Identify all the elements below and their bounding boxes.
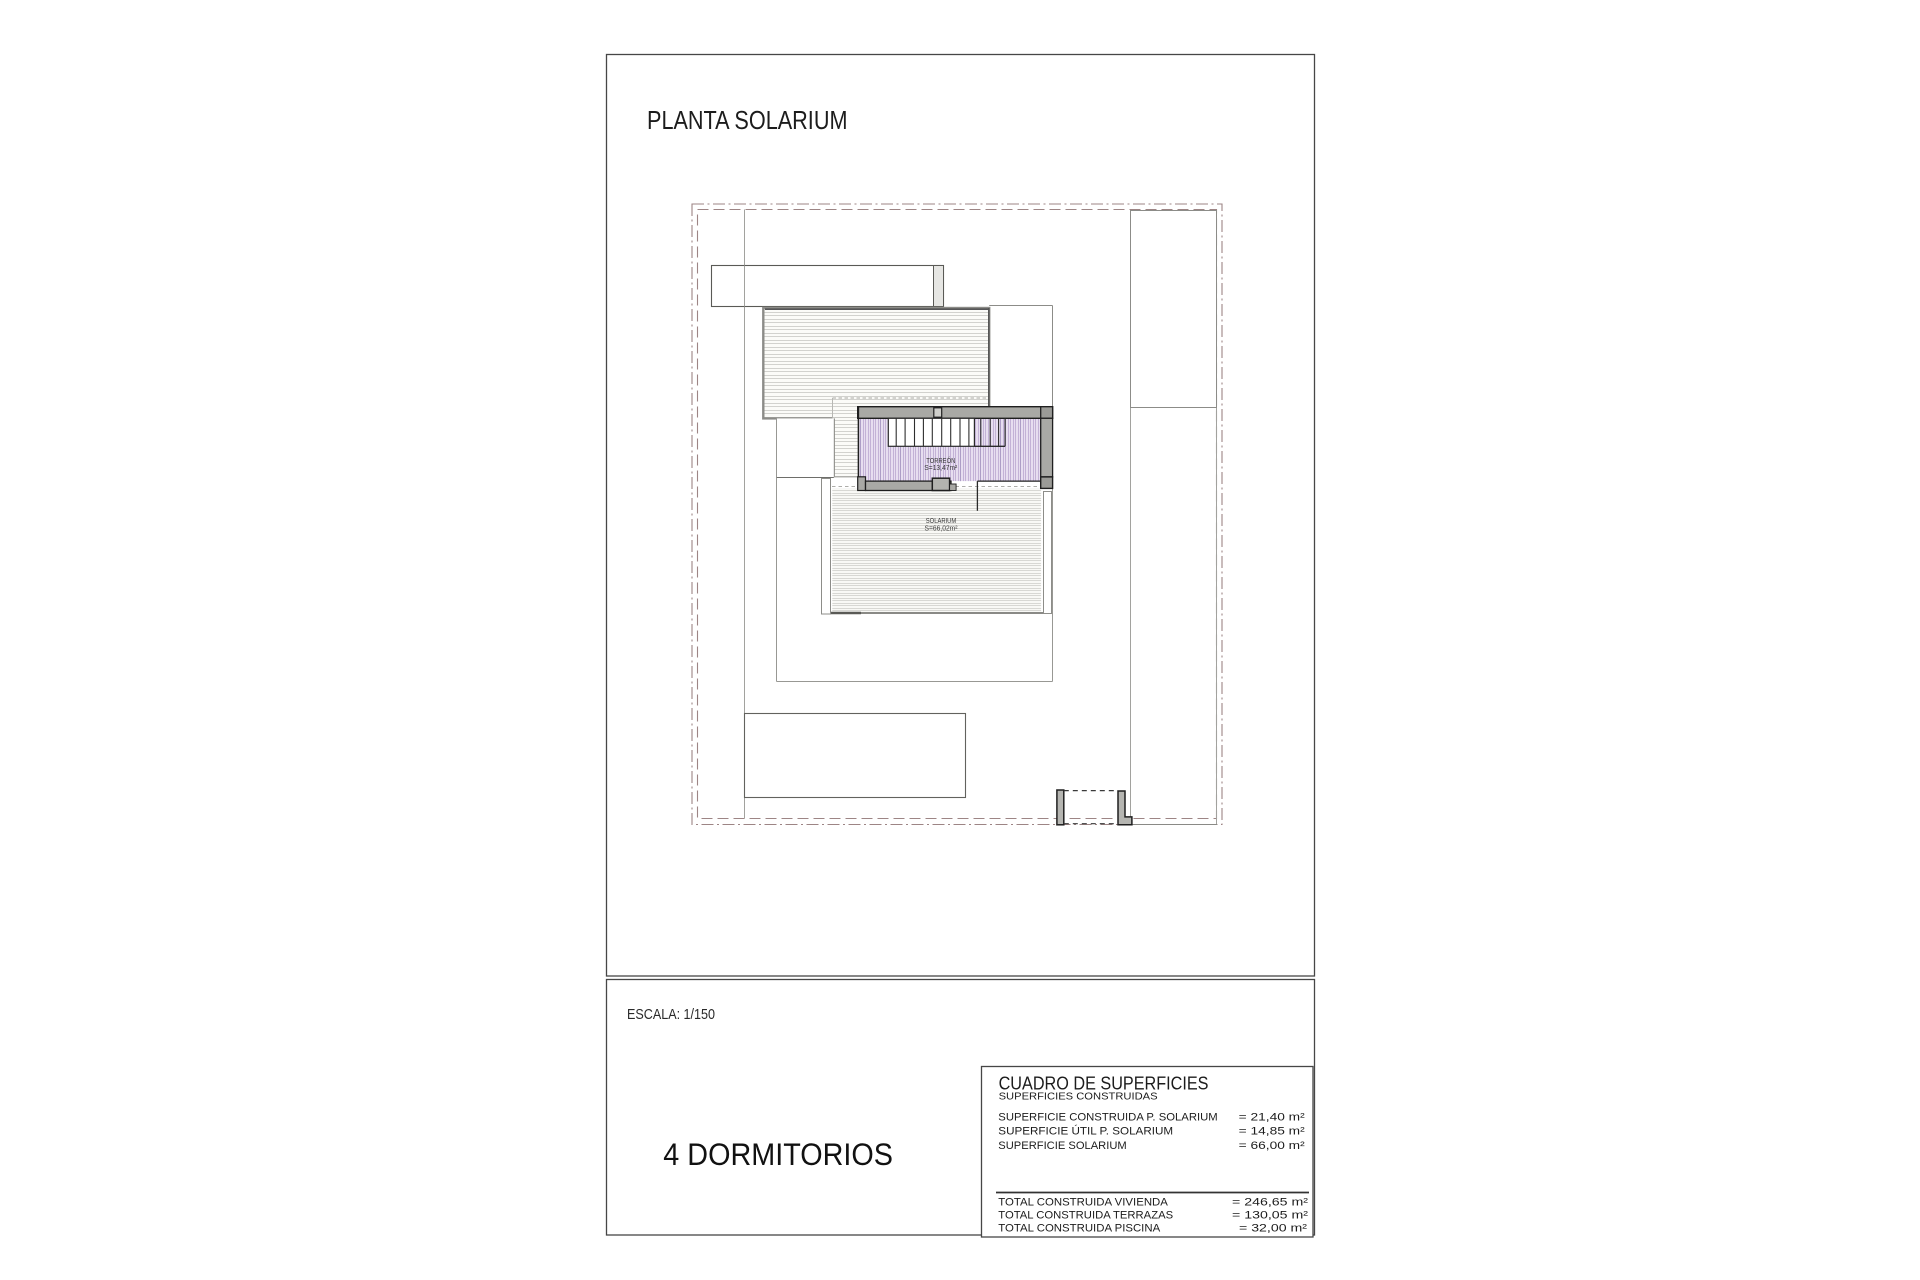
svg-text:SUPERFICIE ÚTIL P. SOLARIUM: SUPERFICIE ÚTIL P. SOLARIUM [998, 1124, 1173, 1137]
svg-text:SUPERFICIE SOLARIUM: SUPERFICIE SOLARIUM [998, 1140, 1126, 1152]
svg-text:PLANTA SOLARIUM: PLANTA SOLARIUM [647, 107, 848, 135]
svg-text:= 21,40 m²: = 21,40 m² [1239, 1111, 1305, 1123]
svg-text:SUPERFICIE CONSTRUIDA P. SOLAR: SUPERFICIE CONSTRUIDA P. SOLARIUM [998, 1111, 1217, 1123]
svg-text:TOTAL CONSTRUIDA VIVIENDA: TOTAL CONSTRUIDA VIVIENDA [998, 1197, 1168, 1209]
svg-text:S=66,02m²: S=66,02m² [925, 524, 959, 533]
svg-text:TOTAL CONSTRUIDA TERRAZAS: TOTAL CONSTRUIDA TERRAZAS [998, 1209, 1173, 1221]
svg-text:SUPERFICIES CONSTRUIDAS: SUPERFICIES CONSTRUIDAS [999, 1090, 1158, 1102]
svg-text:4 DORMITORIOS: 4 DORMITORIOS [663, 1136, 893, 1172]
svg-text:ESCALA: 1/150: ESCALA: 1/150 [627, 1006, 715, 1023]
svg-text:S=13,47m²: S=13,47m² [924, 463, 958, 472]
svg-text:= 130,05 m²: = 130,05 m² [1232, 1209, 1308, 1221]
svg-text:= 32,00 m²: = 32,00 m² [1239, 1222, 1307, 1234]
svg-text:TOTAL CONSTRUIDA PISCINA: TOTAL CONSTRUIDA PISCINA [998, 1222, 1161, 1234]
svg-text:= 66,00 m²: = 66,00 m² [1239, 1140, 1305, 1152]
svg-text:= 246,65 m²: = 246,65 m² [1232, 1197, 1308, 1209]
svg-text:= 14,85 m²: = 14,85 m² [1239, 1125, 1305, 1137]
